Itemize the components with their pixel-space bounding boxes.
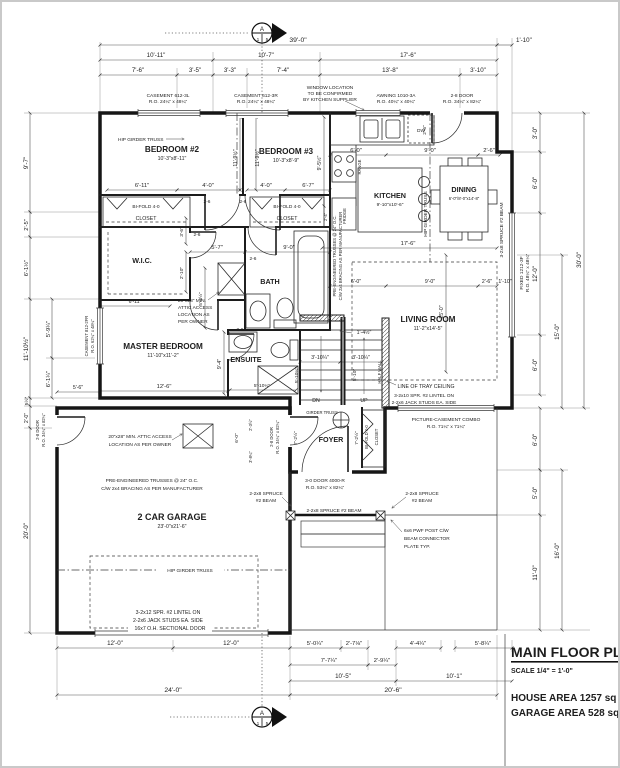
dim: 30'-0" bbox=[576, 252, 583, 268]
room-foyer: FOYER bbox=[319, 435, 345, 444]
dim: 3'-10¼" bbox=[352, 355, 370, 361]
dim: 6'-0" bbox=[351, 279, 361, 285]
ensuite-toilet bbox=[271, 340, 298, 360]
casement-812-label: CASEMENT 812-2FR bbox=[84, 316, 89, 357]
dim: 9'-0" bbox=[424, 148, 436, 154]
tray-ceiling-label: LINE OF TRAY CEILING bbox=[397, 384, 454, 390]
room-bedroom3: BEDROOM #3 bbox=[259, 147, 314, 156]
front-door-label: 3-0 DOOR 4000-R bbox=[305, 478, 345, 484]
overhead-door-label: 16x7 O.H. SECTIONAL DOOR bbox=[134, 626, 205, 632]
dim-overall-width: 39'-0" bbox=[289, 37, 307, 44]
attic-hatch-garage bbox=[183, 424, 213, 448]
sheet-title: MAIN FLOOR PLAN bbox=[511, 644, 620, 660]
girder-truss-foyer: GIRDER TRUSS bbox=[306, 410, 338, 415]
attic-note-garage-1: 20"x28" MIN. ATTIC ACCESS bbox=[108, 434, 171, 440]
section-sheet: 5 bbox=[266, 37, 269, 43]
bifold-bed2: BI-FOLD 4-0 bbox=[132, 204, 160, 210]
dim-door: 2-6 bbox=[204, 199, 211, 205]
window-casement-master bbox=[95, 308, 105, 364]
kitchen-sink bbox=[360, 116, 404, 142]
dim: 17'-6" bbox=[401, 241, 416, 247]
closet-bed2-label: CLOSET bbox=[136, 216, 158, 222]
room-garage: 2 CAR GARAGE bbox=[137, 512, 206, 522]
dim: 2'-6" bbox=[422, 125, 428, 135]
dim: 6'-1½" bbox=[23, 260, 30, 276]
dim: 10'-7" bbox=[258, 52, 274, 59]
bathtub bbox=[294, 231, 328, 323]
beam-left-2: #2 BEAM bbox=[256, 498, 276, 504]
dim: 12'-0" bbox=[532, 266, 539, 282]
dim: 12'-6" bbox=[157, 384, 172, 390]
dim: 3'-8¼" bbox=[248, 451, 253, 463]
truss-note-garage-2: C/W 2x4 BRACING AS PER MANUFACTURER bbox=[101, 486, 203, 492]
dim-door: 2-6 bbox=[194, 232, 201, 238]
dim: 5'-8¼" bbox=[475, 641, 491, 647]
dim: 5'-0" bbox=[532, 487, 539, 499]
hip-girder-garage: HIP GIRDER TRUSS bbox=[167, 568, 212, 574]
dim: 3'-6" bbox=[179, 227, 185, 237]
room-living: LIVING ROOM bbox=[400, 315, 455, 324]
door-rear-entry bbox=[430, 108, 464, 143]
post-note-1: 6x6 PWF POST C/W bbox=[404, 528, 449, 534]
living-lintel-2: 2-2x6 JACK STUDS EA. SIDE bbox=[392, 400, 457, 406]
dim: 12'-0" bbox=[223, 640, 239, 647]
dim: 10'-5" bbox=[335, 673, 351, 680]
bifold-foyer: BI-FOLD 4-0 bbox=[364, 424, 369, 448]
dim: 3'-10¼" bbox=[311, 355, 329, 361]
picture-window-label: PICTURE-CASEMENT COMBO bbox=[412, 417, 481, 423]
dim: 2'-4" bbox=[323, 212, 328, 221]
dim: 6'-7" bbox=[302, 183, 314, 189]
casement-right-label: CASEMENT 612-3R bbox=[234, 93, 278, 99]
closet-foyer-label: CLOSET bbox=[374, 428, 379, 445]
dim: 2'-3½" bbox=[248, 419, 253, 431]
section-num: 1 bbox=[257, 721, 260, 727]
dim: 7'-2½" bbox=[353, 431, 360, 445]
dim: 7'-2½" bbox=[292, 431, 299, 445]
room-kitchen-size: 9'-10"x10'-6" bbox=[377, 202, 404, 208]
dim: 5'-10" bbox=[352, 369, 358, 382]
kitchen-island bbox=[358, 168, 430, 232]
dim: 4'-4¼" bbox=[410, 641, 426, 647]
stairs-up-label: UP bbox=[360, 398, 368, 404]
dim: 5'-6" bbox=[73, 385, 83, 391]
attic-note-hall-2: ATTIC ACCESS bbox=[178, 305, 212, 311]
garage-foyer-door-ro: R.O. 34¼" x 82¼" bbox=[275, 420, 280, 454]
room-bedroom3-size: 10'-3"x8'-9" bbox=[273, 158, 299, 164]
garage-side-door-ro: R.O. 34¼" x 82¼" bbox=[41, 413, 46, 447]
garage-lintel-2: 2-2x6 JACK STUDS EA. SIDE bbox=[133, 618, 204, 624]
section-marker-bottom: A 1 5 bbox=[252, 707, 287, 727]
dim: 9'-0" bbox=[283, 245, 295, 251]
room-bedroom2-size: 10'-3"x8'-11" bbox=[158, 156, 187, 162]
dim-door: 2-6 bbox=[240, 199, 247, 205]
dim: 5'-10¼" bbox=[294, 367, 300, 384]
dim: 11'-9½" bbox=[232, 149, 239, 166]
porch-step bbox=[301, 521, 385, 534]
dim: 6'-0" bbox=[532, 359, 539, 371]
dim: 5'-7" bbox=[211, 245, 223, 251]
attic-hatch-hall bbox=[218, 263, 245, 295]
rear-door-ro: R.O. 34¼" x 82¼" bbox=[443, 99, 482, 105]
dim: 3'-5" bbox=[189, 67, 201, 74]
extension-lines bbox=[24, 38, 590, 700]
dim: 10'-1" bbox=[446, 673, 462, 680]
truss-note-garage-1: PRE-ENGINEERED TRUSSES @ 24" O.C. bbox=[106, 478, 199, 484]
dim: 3'-0" bbox=[532, 127, 539, 139]
window-casement-right bbox=[226, 108, 288, 118]
dim: 2'-6" bbox=[483, 148, 495, 154]
dim: 13'-8" bbox=[382, 67, 398, 74]
title-block: MAIN FLOOR PLAN SCALE 1/4" = 1'-0" HOUSE… bbox=[505, 634, 620, 768]
dim: 3'-10" bbox=[470, 67, 486, 74]
room-garage-size: 23'-0"x21'-6" bbox=[157, 524, 186, 530]
fixed-window-ro: R.O. 48¼" x 48¼" bbox=[525, 254, 531, 293]
rear-door-label: 2-8 DOOR bbox=[451, 93, 474, 99]
attic-note-hall-4: PER OWNER bbox=[178, 319, 208, 325]
dim: 6'-0" bbox=[532, 177, 539, 189]
hip-girder-dining: HIP GIRDER TRUSS bbox=[423, 191, 429, 236]
dim: 1'-10" bbox=[498, 279, 511, 285]
post-note-3: PLATE TYP. bbox=[404, 544, 430, 550]
dim: 20'-6" bbox=[384, 687, 402, 694]
door-bath bbox=[248, 227, 276, 255]
dim: 5½" bbox=[23, 397, 30, 406]
sheet-scale: SCALE 1/4" = 1'-0" bbox=[511, 668, 573, 675]
room-ensuite: ENSUITE bbox=[230, 355, 261, 364]
casement-left-ro: R.O. 24¼" x 48¼" bbox=[149, 99, 188, 105]
post-note-2: BEAM CONNECTOR bbox=[404, 536, 450, 542]
dim: 2'-9¼" bbox=[374, 658, 390, 664]
casement-right-ro: R.O. 24¼" x 48¼" bbox=[237, 99, 276, 105]
dim: 7'-4" bbox=[277, 67, 289, 74]
window-note-2: TO BE CONFIRMED bbox=[308, 91, 353, 97]
dim: 9'-5½" bbox=[316, 156, 323, 171]
dim: 5'-0¼" bbox=[307, 641, 323, 647]
dim-door: 2-6 bbox=[250, 256, 257, 262]
dim: 6'-11" bbox=[135, 183, 149, 189]
room-master-size: 11'-10"x11'-2" bbox=[147, 353, 178, 359]
dim: 24'-0" bbox=[164, 687, 182, 694]
dim: 9'-7" bbox=[23, 157, 30, 169]
attic-note-garage-2: LOCATION AS PER OWNER bbox=[109, 442, 172, 448]
bifold-bed3: BI-FOLD 4-0 bbox=[273, 204, 301, 210]
house-area: HOUSE AREA 1257 sq ft. bbox=[511, 693, 620, 704]
floor-plan-drawing: A 1 5 A 1 5 BEDROOM #2 10'-3"x8'-11" BED… bbox=[0, 0, 620, 768]
closet-bedroom3 bbox=[250, 197, 324, 227]
range bbox=[332, 152, 356, 182]
dim: 2'-5" bbox=[24, 219, 30, 231]
room-living-size: 11'-2"x14'-5" bbox=[414, 326, 443, 332]
dim: 2'-7⅛" bbox=[346, 641, 362, 647]
dim: 7'-6" bbox=[132, 67, 144, 74]
dim: 17'-6" bbox=[400, 52, 416, 59]
garage-area: GARAGE AREA 528 sq ft. bbox=[511, 708, 620, 719]
casement-left-label: CASEMENT 612-3L bbox=[147, 93, 190, 99]
beam-right-2: #2 BEAM bbox=[412, 498, 432, 504]
dim: 2'-0" bbox=[24, 413, 30, 423]
section-marker-top: A 1 5 bbox=[252, 23, 287, 43]
window-note-1: WINDOW LOCATION bbox=[307, 85, 354, 91]
room-bath: BATH bbox=[260, 277, 279, 286]
half-wall bbox=[382, 318, 389, 408]
garage-side-door-label: 2-8 DOOR bbox=[35, 420, 40, 440]
dim: 6'-0" bbox=[234, 433, 240, 443]
dim: 25'-0" bbox=[439, 305, 445, 318]
dim: 20'-0" bbox=[23, 523, 30, 539]
dim: 3'-3" bbox=[224, 67, 236, 74]
room-wic: W.I.C. bbox=[132, 256, 152, 265]
dim: 2'-6" bbox=[482, 279, 492, 285]
casement-812-ro: R.O. 62¼" x 48¼" bbox=[90, 319, 95, 353]
dim-door: 2-6 bbox=[237, 327, 244, 333]
bath-vanity bbox=[246, 294, 270, 328]
closet-bedroom2 bbox=[103, 197, 190, 227]
garage-lintel-1: 3-2x12 SPR. #2 LINTEL ON bbox=[136, 610, 201, 616]
front-door-ro: R.O. 53¼" x 82¼" bbox=[306, 485, 345, 491]
half-wall-label: HALF WALL bbox=[377, 360, 382, 384]
dim: 6'-1¼" bbox=[46, 371, 52, 387]
dim: 4'-0" bbox=[260, 183, 272, 189]
dim: 11'-10½" bbox=[23, 337, 30, 361]
room-dining: DINING bbox=[451, 185, 477, 194]
dim: 6'-11" bbox=[129, 299, 142, 305]
range-label: RANGE bbox=[357, 159, 362, 174]
garage-foyer-door-label: 2-8 DOOR bbox=[269, 427, 274, 447]
dim: 9'-4" bbox=[217, 359, 223, 369]
dim: 1'-4½" bbox=[357, 329, 372, 336]
reference-lines bbox=[57, 33, 497, 717]
door-garage-side bbox=[52, 415, 85, 447]
beam-3-2x8-label: 3-2x8 SPRUCE #2 BEAM bbox=[499, 203, 505, 258]
dim: 7'-7¼" bbox=[321, 658, 337, 664]
door-front-entry bbox=[298, 426, 352, 477]
attic-note-hall-3: LOCATION AS bbox=[178, 312, 210, 318]
truss-note-kitchen-1: PRE-ENGINEERED TRUSSES @ 24" O.C. bbox=[332, 215, 337, 296]
beam-left-1: 2-2x8 SPRUCE bbox=[249, 491, 282, 497]
porch-step bbox=[301, 534, 385, 547]
dim: 4'-0" bbox=[202, 183, 214, 189]
dim-top-right: 1'-10" bbox=[516, 37, 532, 44]
stairs-dn-label: DN bbox=[312, 398, 320, 404]
room-master: MASTER BEDROOM bbox=[123, 342, 203, 351]
closet-bed3-label: CLOSET bbox=[277, 216, 299, 222]
window-note-3: BY KITCHEN SUPPLIER bbox=[303, 97, 357, 103]
dim: 11'-9½" bbox=[254, 149, 261, 166]
fixed-window-label: FIXED 1212-3F bbox=[519, 256, 525, 289]
dim: 12'-0" bbox=[107, 640, 123, 647]
dim: 5'-4½" bbox=[197, 292, 204, 306]
hip-girder-bed2: HIP GIRDER TRUSS bbox=[118, 137, 163, 143]
dim: 6'-0" bbox=[350, 148, 362, 154]
truss-note-kitchen-2: C/W 2x4 BRACING AS PER MANUFACTURER bbox=[338, 212, 343, 301]
section-sheet: 5 bbox=[266, 721, 269, 727]
awning-ro: R.O. 40¼" x 40¼" bbox=[377, 99, 416, 105]
awning-label: AWNING 1010-3A bbox=[376, 93, 416, 99]
floor-plan-sheet: A 1 5 A 1 5 BEDROOM #2 10'-3"x8'-11" BED… bbox=[0, 0, 620, 768]
room-bedroom2: BEDROOM #2 bbox=[145, 145, 200, 154]
dim: 5'-9¼" bbox=[46, 321, 52, 337]
dim: 2'-10" bbox=[179, 267, 185, 280]
living-lintel-1: 3-2x10 SPR. #2 LINTEL ON bbox=[394, 393, 454, 399]
bath-toilet bbox=[274, 298, 296, 328]
dim: 10'-11" bbox=[147, 52, 166, 59]
window-fixed-right bbox=[507, 213, 517, 337]
beam-right-1: 2-2x8 SPRUCE bbox=[405, 491, 438, 497]
dim: 6'-0" bbox=[532, 434, 539, 446]
dim: 11'-0" bbox=[532, 565, 539, 580]
dim: 15'-0" bbox=[554, 324, 561, 340]
section-num: 1 bbox=[257, 37, 260, 43]
dim: 16'-0" bbox=[554, 543, 561, 559]
beam-front-label: 2-2x8 SPRUCE #2 BEAM bbox=[307, 508, 362, 514]
room-kitchen: KITCHEN bbox=[374, 191, 406, 200]
dim: 5'-10¼" bbox=[254, 383, 271, 389]
window-casement-left bbox=[138, 108, 200, 118]
fixtures bbox=[103, 113, 497, 467]
dimension-labels: 39'-0" 1'-10" 10'-11" 10'-7" 17'-6" 7'-6… bbox=[23, 37, 583, 694]
dim: 9'-0" bbox=[425, 279, 435, 285]
room-dining-size: 6'-0"/8'-0"x14'-8" bbox=[449, 196, 480, 201]
picture-window-ro: R.O. 71¼" x 71¼" bbox=[427, 424, 466, 430]
